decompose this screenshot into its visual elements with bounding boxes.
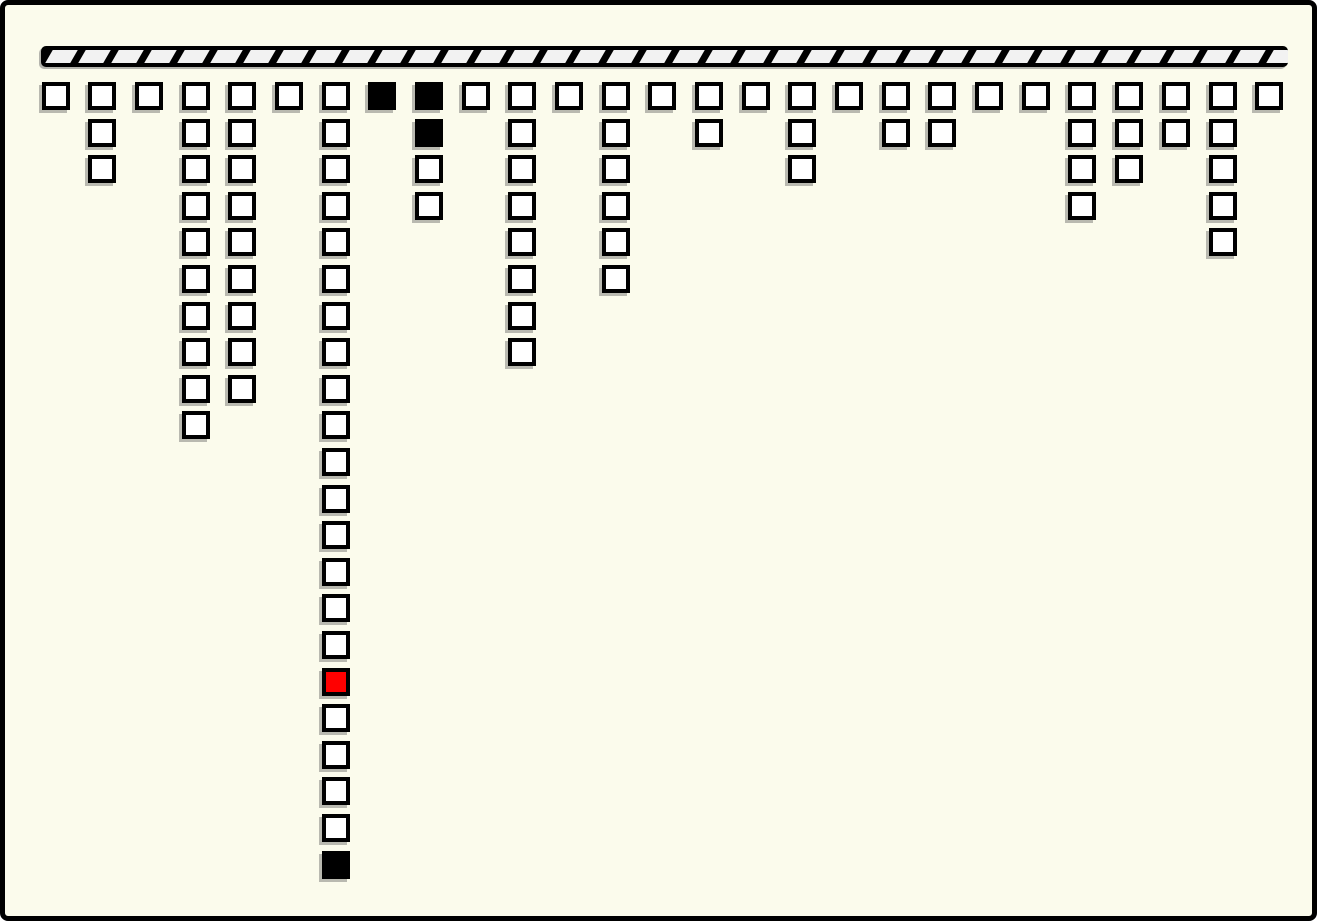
chain-cell xyxy=(182,119,210,147)
chain-cell xyxy=(555,82,583,110)
chain-cell xyxy=(322,631,350,659)
chain-cell xyxy=(1115,155,1143,183)
chain-cell xyxy=(1068,119,1096,147)
chain-cell xyxy=(508,192,536,220)
chain-cell xyxy=(1162,119,1190,147)
chain-cell xyxy=(508,119,536,147)
chain-cell xyxy=(88,155,116,183)
chain-cell xyxy=(788,155,816,183)
chain-cell xyxy=(882,119,910,147)
chain-cell xyxy=(602,228,630,256)
chain-cell xyxy=(322,814,350,842)
chain-cell xyxy=(182,265,210,293)
chain-cell xyxy=(322,119,350,147)
chain-cell xyxy=(322,704,350,732)
chain-cell xyxy=(322,155,350,183)
chain-cell xyxy=(228,302,256,330)
visualization-frame xyxy=(0,0,1317,921)
chain-cell xyxy=(228,82,256,110)
chain-cell xyxy=(1209,82,1237,110)
chain-cell xyxy=(228,119,256,147)
chain-cell xyxy=(415,155,443,183)
chain-cell xyxy=(182,375,210,403)
chain-cell xyxy=(322,192,350,220)
chain-cell xyxy=(602,192,630,220)
chain-cell xyxy=(275,82,303,110)
chain-cell xyxy=(415,82,443,110)
chain-cell xyxy=(322,777,350,805)
chain-cell xyxy=(322,521,350,549)
chain-cell xyxy=(322,411,350,439)
chain-cell xyxy=(602,119,630,147)
chain-cell xyxy=(182,228,210,256)
chain-cell xyxy=(182,338,210,366)
chain-cell xyxy=(228,375,256,403)
chain-cell xyxy=(182,82,210,110)
chain-cell xyxy=(322,594,350,622)
chain-cell xyxy=(975,82,1003,110)
chain-cell xyxy=(508,228,536,256)
chain-cell xyxy=(1209,119,1237,147)
chain-cell xyxy=(322,741,350,769)
chain-cell xyxy=(1068,192,1096,220)
chain-cell xyxy=(322,851,350,879)
chain-cell xyxy=(228,265,256,293)
chain-cell xyxy=(508,338,536,366)
chain-cell xyxy=(695,119,723,147)
chain-cell xyxy=(322,302,350,330)
chain-cell xyxy=(788,82,816,110)
chain-cell xyxy=(1209,192,1237,220)
chain-cell xyxy=(322,668,350,696)
chain-cell xyxy=(322,375,350,403)
chain-cell xyxy=(135,82,163,110)
chain-cell xyxy=(928,82,956,110)
chain-cell xyxy=(648,82,676,110)
chain-cell xyxy=(462,82,490,110)
chain-cell xyxy=(415,119,443,147)
chain-cell xyxy=(415,192,443,220)
chain-cell xyxy=(602,82,630,110)
chain-cell xyxy=(508,265,536,293)
chain-cell xyxy=(228,228,256,256)
chain-cell xyxy=(182,155,210,183)
chain-cell xyxy=(1022,82,1050,110)
chain-cell xyxy=(602,155,630,183)
chain-cell xyxy=(1068,155,1096,183)
chain-cell xyxy=(322,82,350,110)
chain-cell xyxy=(322,265,350,293)
chain-cell xyxy=(322,448,350,476)
chain-cell xyxy=(1068,82,1096,110)
chain-cell xyxy=(322,558,350,586)
chain-cell xyxy=(42,82,70,110)
chain-cell xyxy=(88,82,116,110)
chain-cell xyxy=(368,82,396,110)
chain-cell xyxy=(1162,82,1190,110)
chain-cell xyxy=(788,119,816,147)
chain-cell xyxy=(228,338,256,366)
chain-cell xyxy=(835,82,863,110)
chain-cell xyxy=(508,155,536,183)
chain-cell xyxy=(88,119,116,147)
chain-cell xyxy=(742,82,770,110)
chain-cell xyxy=(508,82,536,110)
chain-cell xyxy=(695,82,723,110)
chain-cell xyxy=(1209,228,1237,256)
chain-grid xyxy=(5,5,1312,916)
chain-cell xyxy=(1115,82,1143,110)
chain-cell xyxy=(228,192,256,220)
chain-cell xyxy=(1255,82,1283,110)
chain-cell xyxy=(322,338,350,366)
chain-cell xyxy=(508,302,536,330)
chain-cell xyxy=(1115,119,1143,147)
chain-cell xyxy=(1209,155,1237,183)
chain-cell xyxy=(322,228,350,256)
chain-cell xyxy=(928,119,956,147)
chain-cell xyxy=(182,411,210,439)
chain-cell xyxy=(602,265,630,293)
chain-cell xyxy=(322,485,350,513)
chain-cell xyxy=(182,302,210,330)
chain-cell xyxy=(182,192,210,220)
chain-cell xyxy=(882,82,910,110)
chain-cell xyxy=(228,155,256,183)
